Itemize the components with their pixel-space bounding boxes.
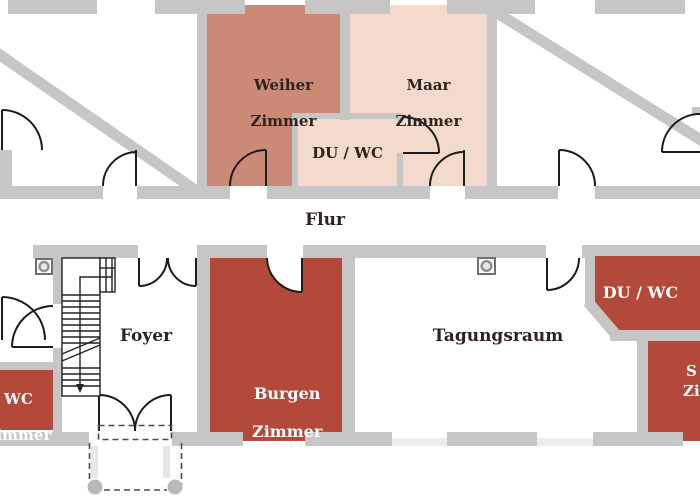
wall-segment: [593, 432, 683, 446]
door-arc: [135, 395, 171, 431]
wall-segment: [197, 14, 207, 199]
wall-segment: [197, 258, 210, 432]
wall-segment: [582, 245, 700, 258]
wall-segment: [340, 14, 350, 120]
wall-segment: [595, 186, 700, 199]
door-arc: [168, 258, 196, 286]
wall-segment: [692, 107, 700, 115]
wall-segment: [305, 0, 390, 14]
window-sill: [537, 438, 593, 446]
door-arc: [103, 152, 136, 186]
window-sill: [392, 438, 447, 446]
wall-segment: [637, 335, 648, 432]
wall-segment: [303, 245, 546, 258]
diagonal-wall-right: [494, 11, 700, 142]
label-line: Maar: [406, 76, 450, 94]
label-line: Zimmer: [251, 112, 317, 130]
door-arc: [12, 306, 53, 347]
label-duwc-right: DU / WC: [585, 284, 696, 302]
wall-segment: [197, 245, 267, 258]
wall-segment: [610, 330, 700, 341]
wall-segment: [465, 186, 558, 199]
wall-segment: [447, 432, 537, 446]
label-line: Zimmer: [0, 426, 51, 444]
wall-segment: [342, 245, 355, 432]
window-fill-weiher: [245, 5, 305, 14]
wall-segment: [137, 186, 230, 199]
label-tagungsraum: Tagungsraum: [418, 327, 578, 346]
porch-post: [168, 480, 183, 495]
wall-segment: [155, 0, 245, 14]
door-arc: [662, 114, 700, 152]
label-right-partial-room: S: [686, 362, 700, 380]
label-flur: Flur: [275, 211, 375, 230]
pillar-icon-tagungsraum: [478, 258, 495, 274]
floor-plan: Weiher Zimmer Maar Zimmer DU / WC Flur F…: [0, 0, 700, 500]
porch-rail: [91, 446, 98, 478]
porch-post: [88, 480, 103, 495]
label-line: Zimmer: [396, 112, 462, 130]
stair-direction-arrow: [76, 384, 84, 393]
porch-rail: [163, 446, 170, 478]
window-fill-right: [683, 432, 700, 441]
label-left-partial-room: WC Zimmer: [0, 372, 68, 462]
window-fill-maar: [390, 5, 447, 14]
wall-segment: [487, 14, 497, 199]
label-line: WC: [4, 390, 33, 408]
label-duwc-top: DU / WC: [292, 144, 403, 162]
label-line: Zimmer: [252, 422, 322, 441]
wall-segment: [595, 0, 685, 14]
door-arc: [2, 297, 45, 340]
label-foyer: Foyer: [96, 327, 196, 346]
door-arc: [2, 110, 42, 150]
wall-segment: [8, 0, 97, 14]
label-burgen-zimmer: Burgen Zimmer: [216, 365, 336, 460]
label-line: Weiher: [254, 76, 313, 94]
door-arc: [139, 258, 167, 286]
label-weiher-zimmer: Weiher Zimmer: [213, 58, 333, 148]
diagonal-wall-left: [0, 53, 201, 194]
pillar-icon-foyer: [36, 259, 52, 274]
door-arc: [99, 395, 135, 431]
wall-segment: [0, 362, 62, 370]
wall-segment: [447, 0, 535, 14]
wall-segment: [53, 258, 62, 304]
label-maar-zimmer: Maar Zimmer: [358, 58, 478, 148]
label-line: Burgen: [254, 384, 321, 403]
label-right-partial-room-2: Zi: [683, 382, 700, 400]
door-arc: [559, 150, 595, 186]
wall-segment: [0, 186, 103, 199]
door-arc: [547, 258, 579, 290]
wall-segment: [267, 186, 430, 199]
wall-segment: [33, 245, 138, 258]
